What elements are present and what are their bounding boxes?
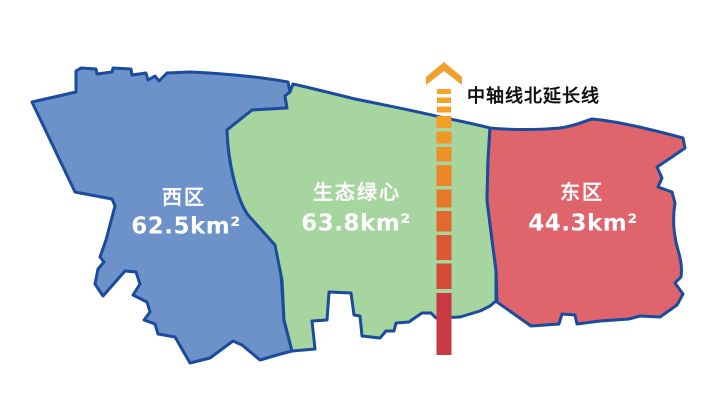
green-heart-area: 63.8km² xyxy=(301,213,411,236)
west-district-area: 62.5km² xyxy=(131,216,241,239)
axis-annotation: 中轴线北延长线 xyxy=(467,82,600,108)
axis-segment xyxy=(437,264,452,290)
west-district-name: 西区 xyxy=(162,187,206,207)
axis-dash xyxy=(437,98,451,104)
axis-dash xyxy=(437,107,451,113)
east-district-area: 44.3km² xyxy=(528,213,638,236)
axis-segment xyxy=(437,132,452,144)
axis-segment xyxy=(437,190,452,208)
axis-segment xyxy=(437,147,452,162)
axis-segment xyxy=(437,211,452,232)
east-district-name: 东区 xyxy=(560,182,604,202)
green-heart-name: 生态绿心 xyxy=(313,182,401,202)
axis-dash xyxy=(437,89,451,94)
axis-arrow-icon xyxy=(426,62,462,85)
axis-segment xyxy=(437,116,452,128)
axis-segment xyxy=(437,293,452,355)
axis-segment xyxy=(437,235,452,260)
district-map: 西区 62.5km² 生态绿心 63.8km² 东区 44.3km² 中轴线北延… xyxy=(0,0,718,407)
axis-segment xyxy=(437,165,452,186)
